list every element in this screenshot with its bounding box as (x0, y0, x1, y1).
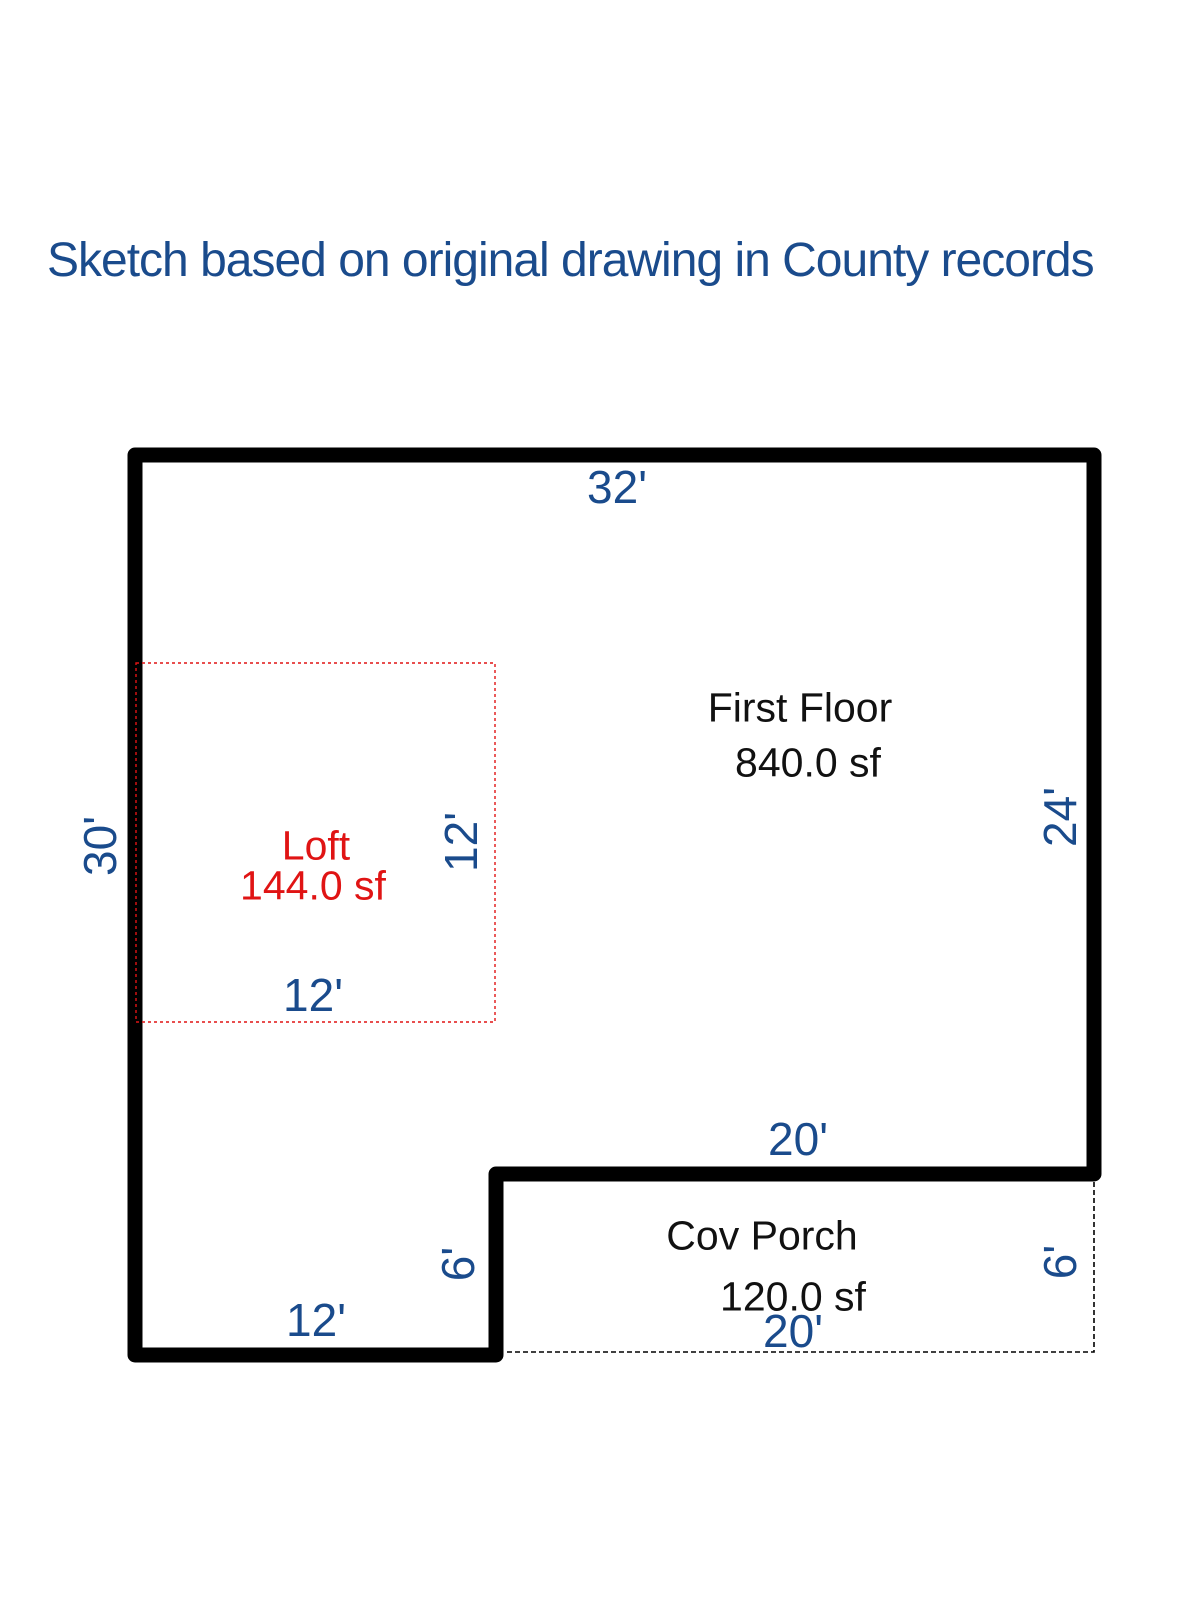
dim-porch-top-width: 20' (768, 1116, 828, 1162)
floor-plan-drawing (0, 0, 1200, 1600)
dim-porch-right-height: 6' (1037, 1245, 1083, 1279)
loft-name-label: Loft (282, 826, 350, 867)
cov-porch-area-label: 120.0 sf (720, 1277, 866, 1318)
dim-house-right-height: 24' (1037, 787, 1083, 847)
first-floor-name-label: First Floor (708, 688, 893, 729)
sketch-page: Sketch based on original drawing in Coun… (0, 0, 1200, 1600)
dim-loft-width: 12' (283, 972, 343, 1018)
dim-porch-inner-height: 6' (435, 1247, 481, 1281)
loft-area-label: 144.0 sf (240, 866, 386, 907)
dim-loft-height: 12' (438, 812, 484, 872)
first-floor-area-label: 840.0 sf (735, 743, 881, 784)
dim-house-bottom-left-width: 12' (286, 1297, 346, 1343)
dim-house-left-height: 30' (77, 816, 123, 876)
cov-porch-name-label: Cov Porch (666, 1216, 857, 1257)
dim-house-top-width: 32' (587, 464, 647, 510)
